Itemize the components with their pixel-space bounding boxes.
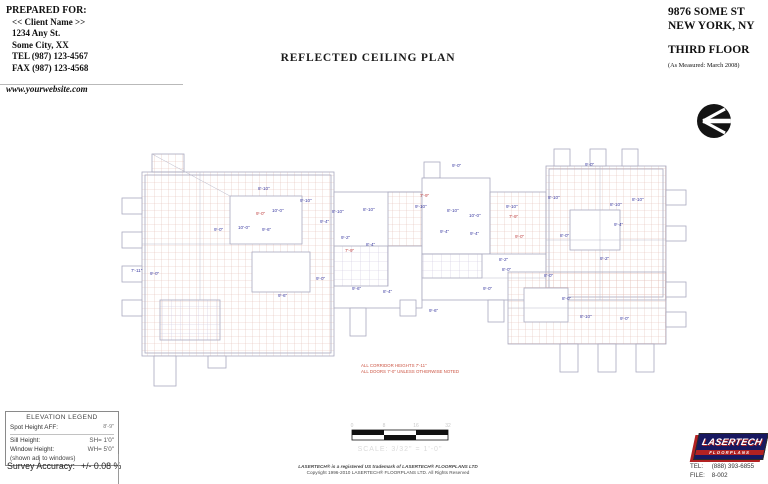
survey-accuracy-value: +/- 0.08 %	[81, 461, 121, 471]
footer-divider	[118, 454, 119, 484]
spot-height-label: 9'-0"	[515, 234, 525, 239]
spot-height-label: 9'-0"	[452, 163, 462, 168]
publisher-file-label: FILE:	[690, 472, 710, 481]
drawing-sheet: PREPARED FOR: << Client Name >> 1234 Any…	[0, 0, 768, 484]
window-height-value: WH= 5'0"	[88, 446, 114, 453]
spot-height-label: 10'-0"	[272, 208, 284, 213]
spot-height-label: 8'-10"	[632, 197, 644, 202]
scale-tick: 16	[413, 423, 419, 429]
spot-height-label: 8'-0"	[560, 233, 570, 238]
building-outline	[122, 149, 686, 386]
spot-height-label: 10'-0"	[469, 213, 481, 218]
copyright-line-2: Copyright 1996-2010 LASERTECH® FLOORPLAN…	[272, 470, 504, 476]
sill-height-value: SH= 1'0"	[89, 437, 114, 444]
spot-height-label: 8'-10"	[363, 207, 375, 212]
spot-height-label: 9'-0"	[483, 286, 493, 291]
plan-note-2: ALL DOORS 7'-0" UNLESS OTHERWISE NOTED	[361, 369, 459, 374]
spot-height-label: 9'-2"	[600, 256, 610, 261]
spot-height-label: 9'-4"	[320, 219, 330, 224]
spot-height-label: 9'-10"	[506, 204, 518, 209]
spot-height-label: 9'-4"	[440, 229, 450, 234]
publisher-file-value: 8-002	[712, 472, 728, 479]
spot-height-label: 9'-0"	[150, 271, 160, 276]
spot-height-label: 9'-6"	[278, 293, 288, 298]
scale-tick: 8	[383, 423, 386, 429]
spot-height-label: 9'-6"	[429, 308, 439, 313]
spot-height-label: 7'-11"	[131, 268, 143, 273]
scale-bar: 081632 SCALE: 3/32" = 1'-0"	[351, 423, 451, 453]
spot-height-label: 9'-10"	[415, 204, 427, 209]
spot-height-label: 9'-0"	[620, 316, 630, 321]
spot-height-label: 9'-0"	[214, 227, 224, 232]
legend-divider	[10, 434, 114, 435]
publisher-tel-label: TEL:	[690, 463, 710, 472]
spot-height-label: 9'-0"	[585, 162, 595, 167]
spot-height-label: Spot Height AFF:	[10, 424, 58, 431]
lasertech-logo-subtext: FLOORPLANS	[695, 450, 764, 455]
spot-height-label: 8'-0"	[544, 273, 554, 278]
publisher-tel-value: (888) 393-6855	[712, 463, 754, 470]
survey-accuracy: Survey Accuracy:+/- 0.08 %	[7, 461, 121, 471]
spot-height-label: 8'-10"	[610, 202, 622, 207]
spot-height-label: 9'-4"	[614, 222, 624, 227]
spot-height-label: 8'-10"	[580, 314, 592, 319]
elevation-legend: ELEVATION LEGEND Spot Height AFF: 8'-9" …	[5, 411, 119, 466]
scale-caption: SCALE: 3/32" = 1'-0"	[358, 446, 443, 453]
spot-height-label: 8'-0"	[502, 267, 512, 272]
spot-height-label: 9'-10"	[300, 198, 312, 203]
spot-height-label: 7'-9"	[509, 214, 519, 219]
sill-height-label: Sill Height:	[10, 437, 40, 444]
spot-height-label: 9'-6"	[352, 286, 362, 291]
spot-height-label: 8'-10"	[332, 209, 344, 214]
spot-height-label: 9'-0"	[256, 211, 266, 216]
spot-height-value: 8'-9"	[103, 424, 114, 431]
spot-height-label: 8'-2"	[499, 257, 509, 262]
copyright-block: LASERTECH® is a registered US trademark …	[272, 464, 504, 476]
spot-height-label: 9'-2"	[341, 235, 351, 240]
spot-height-label: 8'-0"	[562, 296, 572, 301]
spot-height-label: 7'-9"	[345, 248, 355, 253]
publisher-contact: TEL: (888) 393-6855 FILE: 8-002	[690, 463, 754, 480]
spot-height-label: 7'-9"	[420, 193, 430, 198]
window-height-label: Window Height:	[10, 446, 54, 453]
spot-height-label: 9'-6"	[262, 227, 272, 232]
spot-height-label: 8'-10"	[258, 186, 270, 191]
plan-notes: ALL CORRIDOR HEIGHTS 7'-11" ALL DOORS 7'…	[361, 363, 459, 374]
spot-height-label: 10'-0"	[238, 225, 250, 230]
spot-height-label: 8'-4"	[383, 289, 393, 294]
spot-height-label: 9'-4"	[470, 231, 480, 236]
spot-height-label: 9'-0"	[316, 276, 326, 281]
lasertech-logo: LASERTECH FLOORPLANS	[693, 433, 768, 460]
lasertech-logo-text: LASERTECH	[697, 437, 767, 448]
legend-title: ELEVATION LEGEND	[10, 414, 114, 421]
spot-height-label: 8'-10"	[447, 208, 459, 213]
spot-height-label: 8'-10"	[548, 195, 560, 200]
scale-ticks: 081632	[351, 423, 451, 429]
scale-tick: 0	[351, 423, 354, 429]
plan-note-1: ALL CORRIDOR HEIGHTS 7'-11"	[361, 363, 427, 368]
scale-tick: 32	[445, 423, 451, 429]
survey-accuracy-label: Survey Accuracy:	[7, 461, 75, 471]
spot-height-label: 8'-4"	[366, 242, 376, 247]
